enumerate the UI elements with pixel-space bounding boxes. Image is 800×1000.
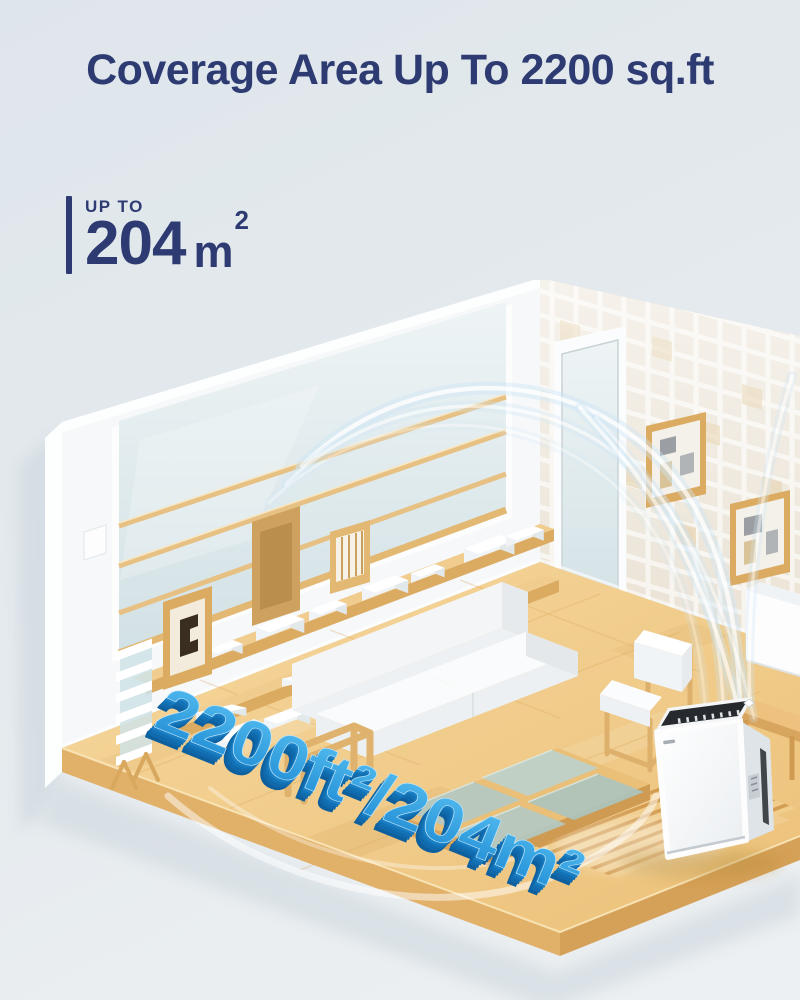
coverage-unit-exponent: 2 [234,205,248,236]
coverage-unit: m [193,234,233,270]
side-handle [748,773,760,800]
accent-bar [66,196,72,274]
page-title: Coverage Area Up To 2200 sq.ft [0,46,800,95]
louver-panel [330,520,370,594]
leaning-artwork [163,586,212,690]
tv-panel [252,506,300,626]
coverage-stat-block: UP TO 204 m 2 [66,196,248,274]
room-illustration: 2200ft²/204m² [0,280,800,1000]
coverage-value: 204 [85,219,185,270]
marketing-page: Coverage Area Up To 2200 sq.ft UP TO 204… [0,0,800,1000]
